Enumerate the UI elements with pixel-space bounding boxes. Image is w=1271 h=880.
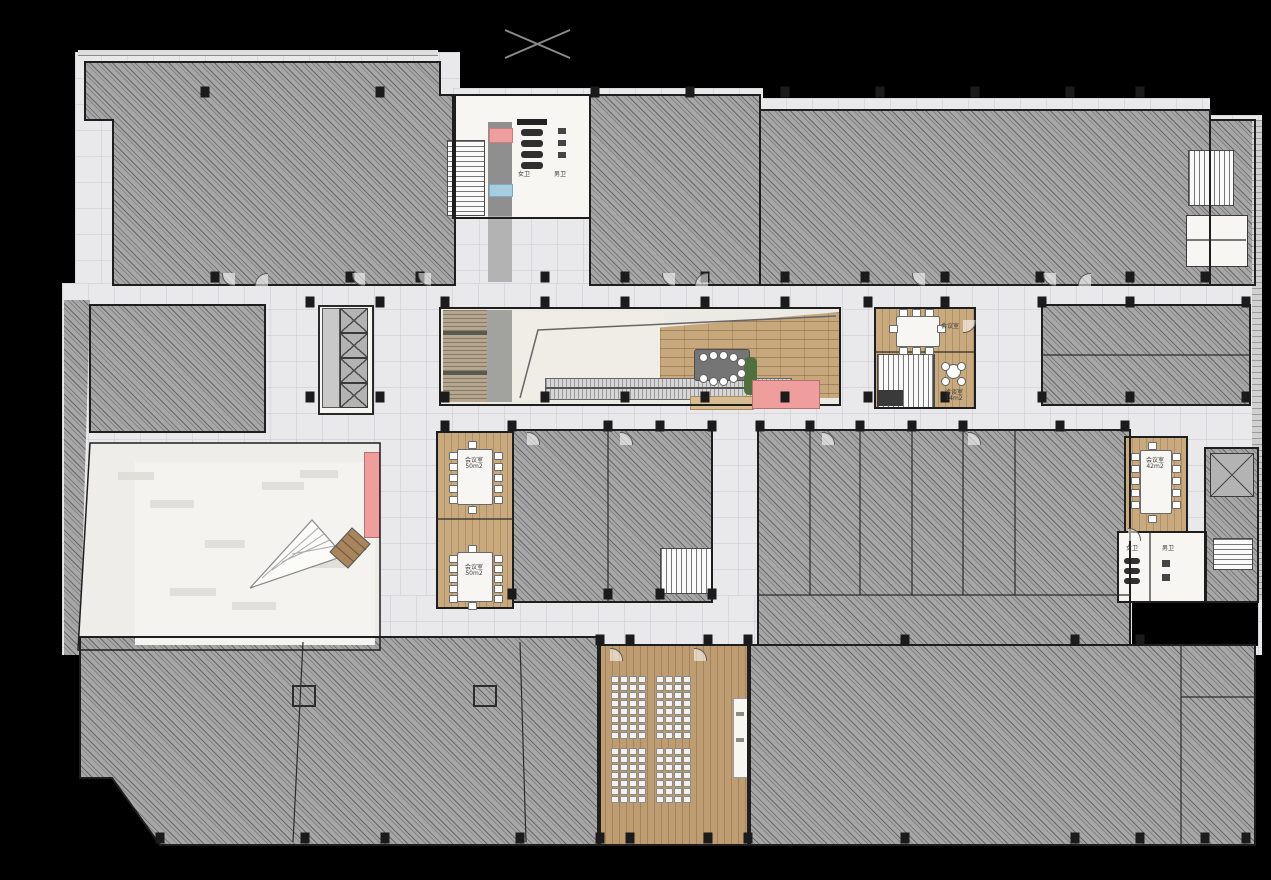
auditorium-seat [629,676,637,683]
structural-column [701,392,710,403]
auditorium-seat [611,732,619,739]
auditorium-seat [611,780,619,787]
auditorium-seat [656,724,664,731]
auditorium-seat [611,684,619,691]
structural-column [861,272,870,283]
podium-mark-2 [736,738,744,742]
auditorium-seat [629,756,637,763]
toilet-male-label-top: 男卫 [548,172,572,178]
structural-column [306,392,315,403]
auditorium-seat [683,684,691,691]
auditorium-seat [611,756,619,763]
auditorium-seat [656,796,664,803]
auditorium-seat [629,700,637,707]
toilet-male-label-right: 男卫 [1156,546,1180,552]
stool [719,351,728,360]
auditorium-seat [620,684,628,691]
auditorium-seat [638,724,646,731]
auditorium-seat [674,772,682,779]
structural-column [596,833,605,844]
structural-column [1056,421,1065,432]
chair [1172,489,1181,497]
auditorium-seat [674,716,682,723]
chair [1131,465,1140,473]
auditorium-seat [638,676,646,683]
chair [1131,477,1140,485]
auditorium-seat [638,772,646,779]
structural-column [704,635,713,646]
structural-column [621,272,630,283]
structural-column [876,87,885,98]
auditorium-seat [683,780,691,787]
auditorium-seat [674,724,682,731]
structural-column [656,421,665,432]
auditorium-seat [656,692,664,699]
auditorium-seat [665,772,673,779]
auditorium-seat [629,716,637,723]
structural-column [656,589,665,600]
auditorium-seat [611,724,619,731]
podium-mark-1 [736,712,744,716]
structural-column [1201,833,1210,844]
structural-column [806,421,815,432]
auditorium-seat [629,772,637,779]
structural-column [441,421,450,432]
auditorium-seat [674,748,682,755]
stool [709,351,718,360]
structural-column [901,833,910,844]
auditorium-seat [638,692,646,699]
chair [1172,501,1181,509]
auditorium-seat [674,788,682,795]
auditorium-seat [665,748,673,755]
auditorium-seat [611,700,619,707]
stool [699,353,708,362]
structural-column [1242,392,1251,403]
chair [494,463,503,471]
structural-column [941,272,950,283]
structural-column [201,87,210,98]
toilet-female-label-top: 女卫 [512,172,536,178]
chair [1172,453,1181,461]
auditorium-seat [665,708,673,715]
chair [449,585,458,593]
stool [719,377,728,386]
stool [957,362,966,371]
auditorium-seat [674,764,682,771]
auditorium-seat [629,724,637,731]
structural-column [701,297,710,308]
auditorium-seat [620,796,628,803]
chair [494,496,503,504]
auditorium-seat [629,796,637,803]
auditorium-seat [629,764,637,771]
auditorium-seat [638,748,646,755]
auditorium-seat [674,732,682,739]
chair [925,309,934,317]
auditorium-seat [683,796,691,803]
auditorium-seat [656,764,664,771]
structural-column [856,421,865,432]
structural-column [604,589,613,600]
chair [449,485,458,493]
auditorium-seat [674,684,682,691]
auditorium-seat [620,676,628,683]
auditorium-seat [656,748,664,755]
structural-column [1201,272,1210,283]
auditorium-seat [665,724,673,731]
chair [1148,515,1157,523]
structural-column [604,421,613,432]
chair [449,463,458,471]
auditorium-seat [638,780,646,787]
auditorium-seat [638,764,646,771]
structural-column [864,297,873,308]
structural-column [971,87,980,98]
auditorium-seat [611,676,619,683]
auditorium-seat [620,788,628,795]
auditorium-seat [674,700,682,707]
chair [912,347,921,355]
auditorium-seat [611,764,619,771]
structural-column [441,297,450,308]
auditorium-seat [683,732,691,739]
auditorium-seat [665,692,673,699]
structural-column [781,392,790,403]
structural-column [1126,272,1135,283]
auditorium-seat [656,772,664,779]
auditorium-seat [620,780,628,787]
auditorium-seat [656,780,664,787]
auditorium-seat [656,788,664,795]
auditorium-seat [629,748,637,755]
structural-column [376,392,385,403]
structural-column [781,272,790,283]
structural-column [541,392,550,403]
auditorium-seat [683,700,691,707]
structural-column [1242,297,1251,308]
structural-column [441,392,450,403]
auditorium-seat [620,764,628,771]
auditorium-seat [656,732,664,739]
structural-column [626,833,635,844]
chair [468,441,477,449]
structural-column [1066,87,1075,98]
auditorium-seat [683,772,691,779]
stool [941,377,950,386]
auditorium-seat [674,676,682,683]
auditorium-seat [656,756,664,763]
structural-column [1071,635,1080,646]
structural-column [516,833,525,844]
structural-column [541,297,550,308]
auditorium-seat [674,780,682,787]
auditorium-seat [611,772,619,779]
auditorium-seat [665,700,673,707]
chair [494,452,503,460]
structural-column [959,421,968,432]
structural-column [781,297,790,308]
chair [449,452,458,460]
structural-column [686,87,695,98]
chair [494,555,503,563]
auditorium-seat [656,684,664,691]
chair [494,474,503,482]
chair [494,595,503,603]
structural-column [1136,87,1145,98]
chair [925,347,934,355]
auditorium-seat [611,708,619,715]
chair [449,496,458,504]
structural-column [306,297,315,308]
auditorium-seat [683,676,691,683]
structural-column [708,421,717,432]
structural-column [1242,833,1251,844]
auditorium-seat [620,772,628,779]
structural-column [1126,297,1135,308]
stool [737,358,746,367]
structural-column [908,421,917,432]
stool [709,377,718,386]
auditorium-seat [656,676,664,683]
chair [899,347,908,355]
auditorium-seat [638,732,646,739]
auditorium-seat [638,700,646,707]
structural-column [211,272,220,283]
auditorium-seat [656,716,664,723]
chair [449,575,458,583]
auditorium-seat [683,692,691,699]
structural-column [1038,297,1047,308]
chair [449,595,458,603]
auditorium-seat [665,764,673,771]
structural-column [1136,833,1145,844]
auditorium-seat [611,716,619,723]
auditorium-seat [665,684,673,691]
structural-column [621,297,630,308]
auditorium-seat [683,716,691,723]
chair [494,575,503,583]
structural-column [744,833,753,844]
lounge-label: 洽谈室14m2 [934,390,974,402]
auditorium-seat [638,716,646,723]
structural-column [156,833,165,844]
auditorium-seat [620,716,628,723]
auditorium-seat [665,676,673,683]
auditorium-seat [620,748,628,755]
chair [468,602,477,610]
auditorium-seat [674,756,682,763]
auditorium-seat [611,796,619,803]
auditorium-seat [665,732,673,739]
structural-column [704,833,713,844]
structural-column [376,297,385,308]
structural-column [1126,392,1135,403]
auditorium-seat [665,796,673,803]
structural-column [541,272,550,283]
auditorium-seat [620,708,628,715]
auditorium-seat [629,780,637,787]
structural-column [1121,421,1130,432]
auditorium-seat [683,788,691,795]
chair [899,309,908,317]
chair [468,545,477,553]
chair [912,309,921,317]
auditorium-seat [611,788,619,795]
meeting-a-label: 会议室50m2 [452,458,496,470]
structural-column [901,635,910,646]
chair [1172,465,1181,473]
auditorium-seat [629,788,637,795]
auditorium-seat [665,756,673,763]
structural-column [1038,392,1047,403]
chair [1131,501,1140,509]
auditorium-seat [638,788,646,795]
chair [468,506,477,514]
auditorium-seat [638,684,646,691]
chair [494,565,503,573]
auditorium-seat [683,708,691,715]
structural-column [508,589,517,600]
chair [1131,453,1140,461]
stool [699,374,708,383]
structural-column [626,635,635,646]
auditorium-seat [674,692,682,699]
auditorium-seat [638,756,646,763]
stool [941,362,950,371]
auditorium-seat [674,796,682,803]
auditorium-seat [629,708,637,715]
structural-column [708,589,717,600]
floor-plan-canvas: 女卫 男卫 会议室 洽谈室14m2 [0,0,1271,880]
auditorium-seat [620,724,628,731]
chair [449,555,458,563]
auditorium-seat [629,692,637,699]
structural-column [596,635,605,646]
structural-column [1136,635,1145,646]
chair [1172,477,1181,485]
auditorium-seat [620,700,628,707]
auditorium-seat [629,732,637,739]
auditorium-seat [665,780,673,787]
auditorium-seat [611,748,619,755]
auditorium-seat [683,748,691,755]
auditorium-seat [620,692,628,699]
structural-column [621,392,630,403]
auditorium-seat [638,796,646,803]
chair [1148,442,1157,450]
structural-column [301,833,310,844]
structural-column [381,833,390,844]
structural-column [508,421,517,432]
auditorium-seat [656,708,664,715]
structural-column [756,421,765,432]
chair [494,585,503,593]
toilet-female-label-right: 女卫 [1120,546,1144,552]
auditorium-seat [683,724,691,731]
meeting-b-label: 会议室50m2 [452,565,496,577]
chair [494,485,503,493]
structural-column [1071,833,1080,844]
chair [449,474,458,482]
auditorium-seat [683,756,691,763]
structural-column [781,87,790,98]
structural-column [744,635,753,646]
stool [957,377,966,386]
auditorium-seat [656,700,664,707]
chair [1131,489,1140,497]
auditorium-seat [674,708,682,715]
auditorium-seat [665,716,673,723]
chair [449,565,458,573]
auditorium-seat [683,764,691,771]
meeting-top-label: 会议室 [928,324,972,330]
auditorium-seat [638,708,646,715]
structural-column [941,297,950,308]
auditorium-seat [620,756,628,763]
stool [737,369,746,378]
auditorium-seat [611,692,619,699]
auditorium-seat [620,732,628,739]
structural-column [591,87,600,98]
auditorium-seat [629,684,637,691]
structural-column [376,87,385,98]
structural-column [864,392,873,403]
auditorium-seat [665,788,673,795]
chair [889,325,898,333]
